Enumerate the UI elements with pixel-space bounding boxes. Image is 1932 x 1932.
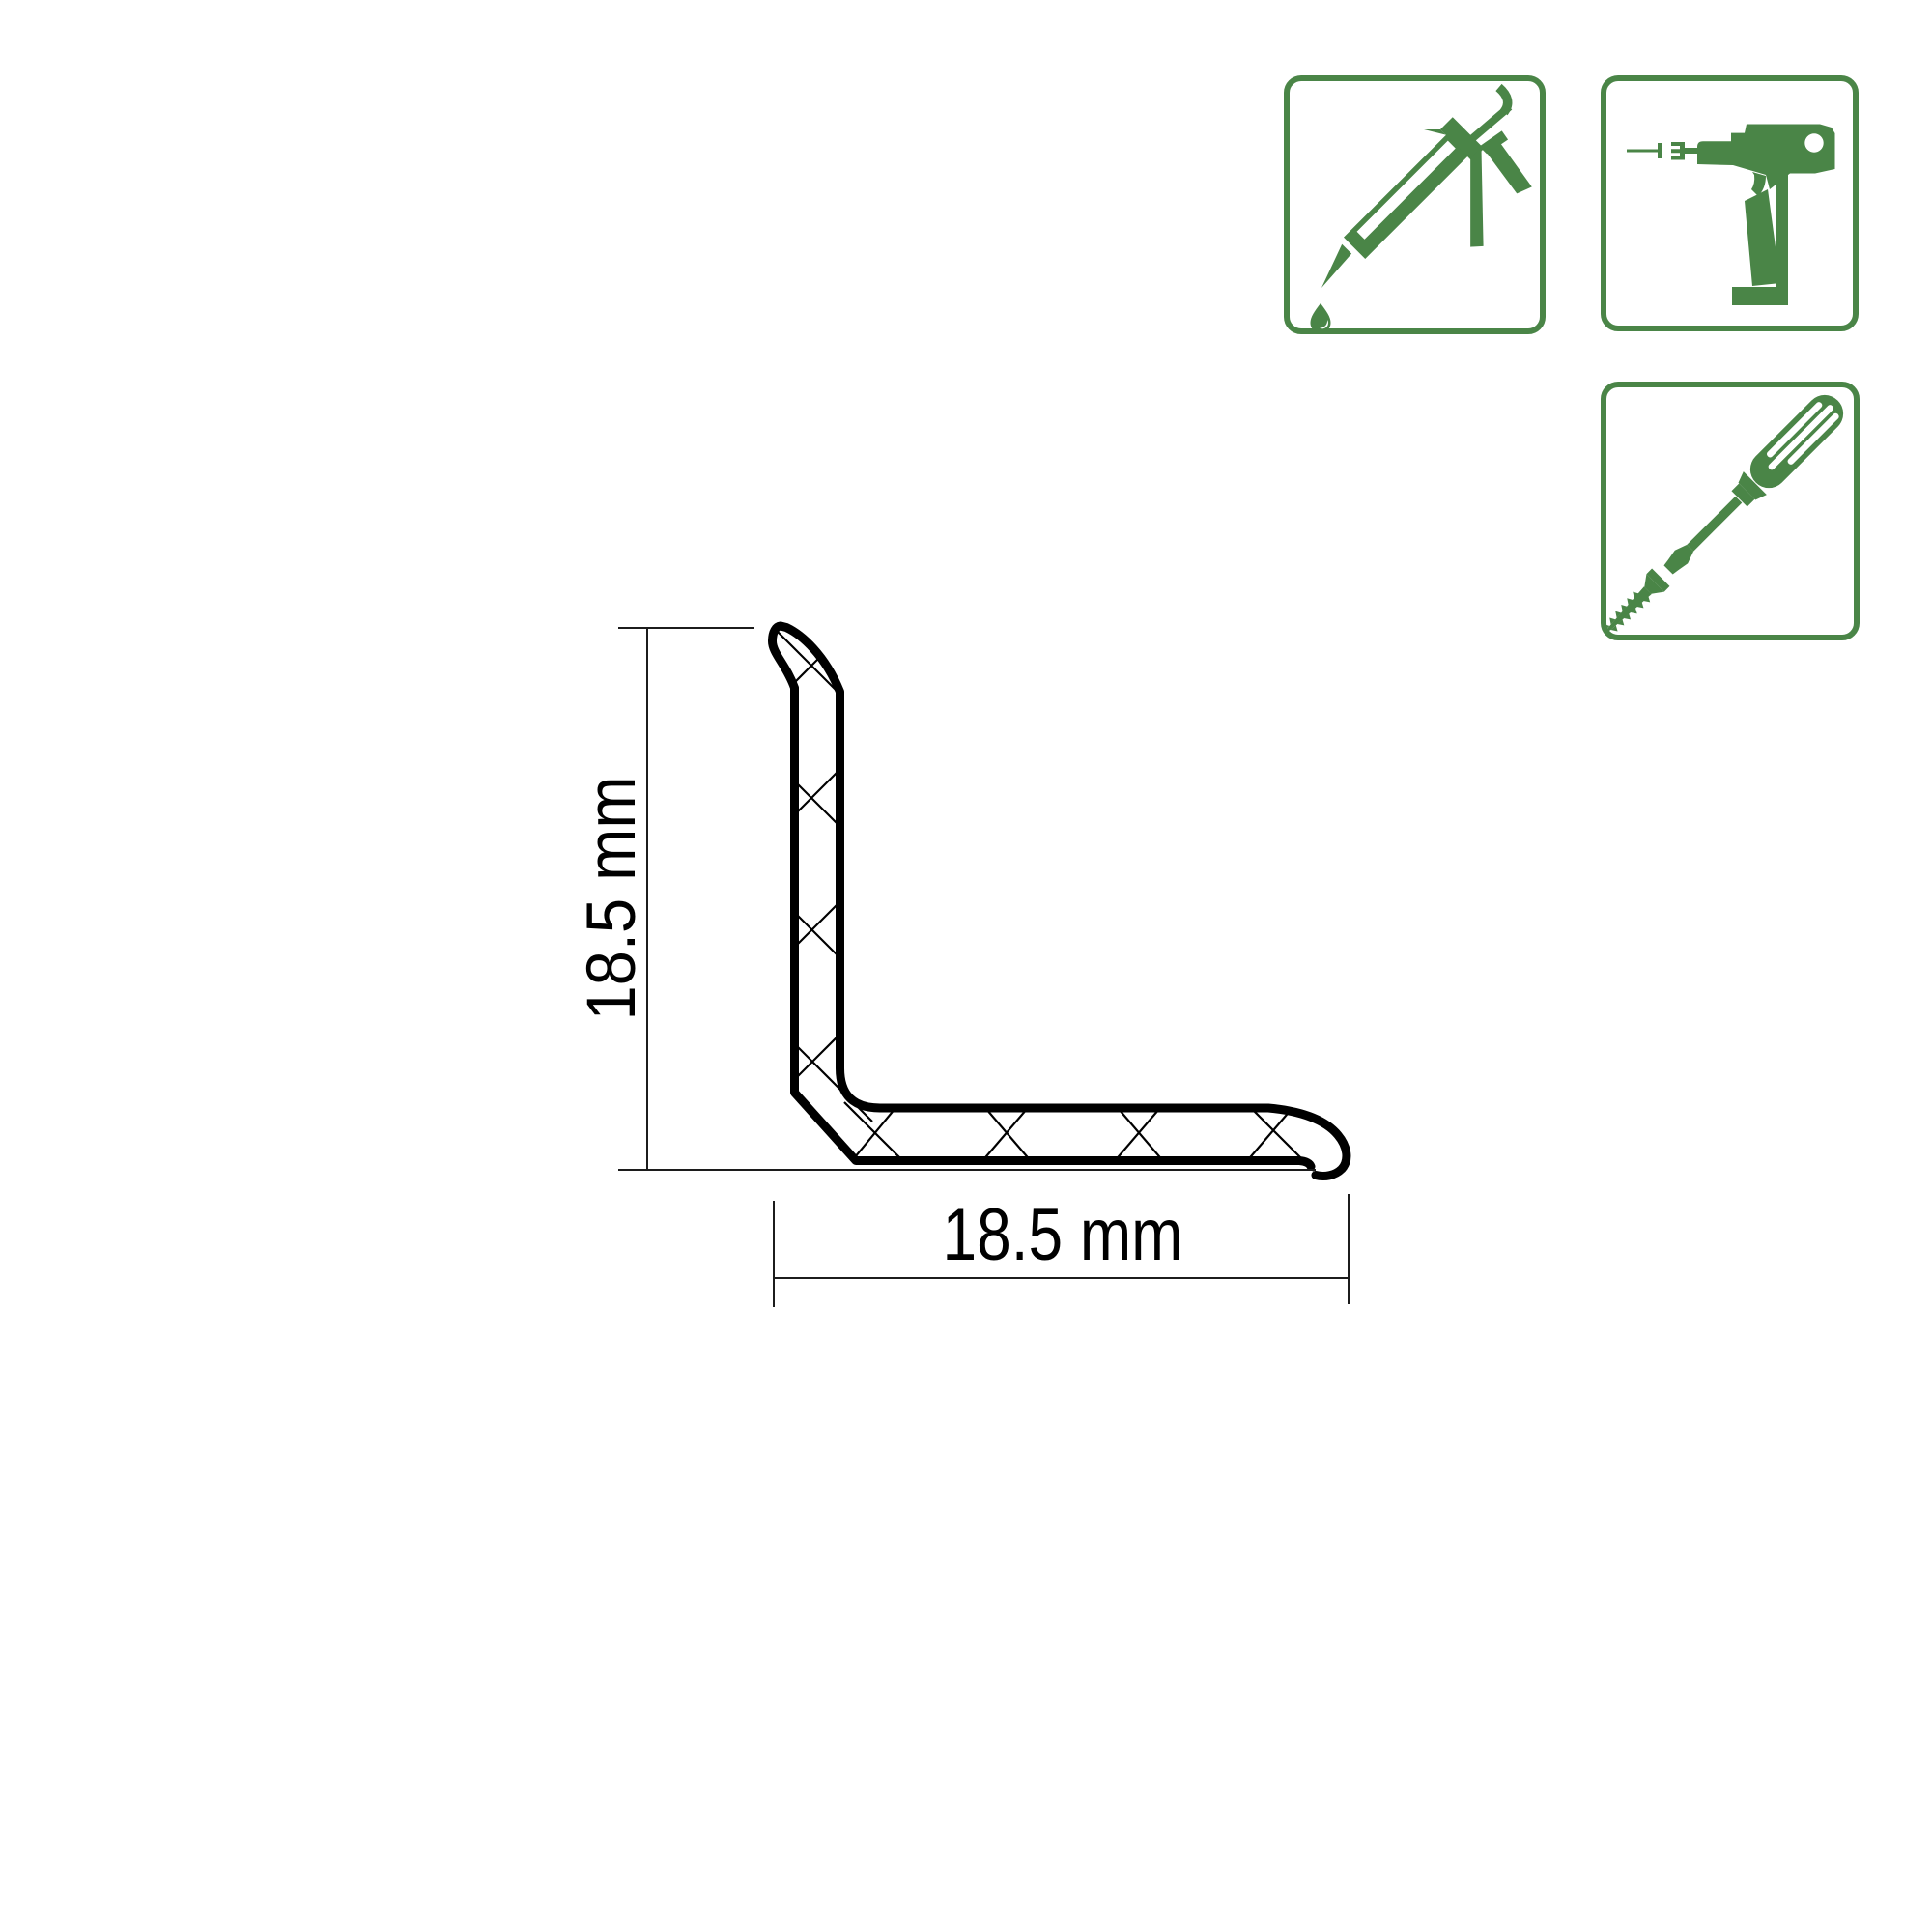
- svg-text:18.5 mm: 18.5 mm: [574, 777, 650, 1021]
- svg-text:18.5 mm: 18.5 mm: [943, 1194, 1183, 1276]
